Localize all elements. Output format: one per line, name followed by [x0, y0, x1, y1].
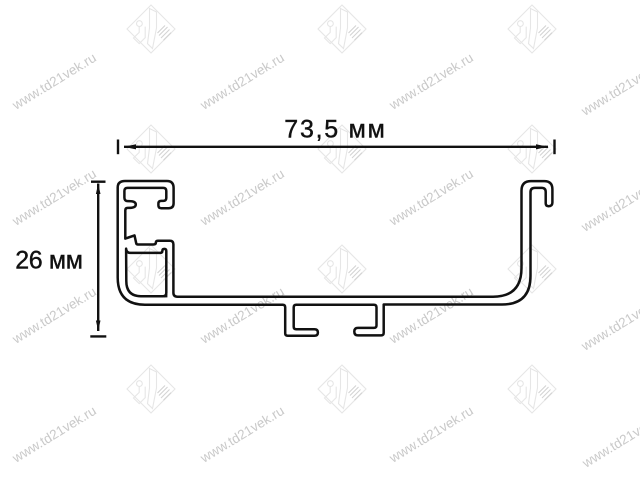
- svg-text:73,5 мм: 73,5 мм: [284, 115, 386, 143]
- svg-text:26 мм: 26 мм: [15, 247, 82, 275]
